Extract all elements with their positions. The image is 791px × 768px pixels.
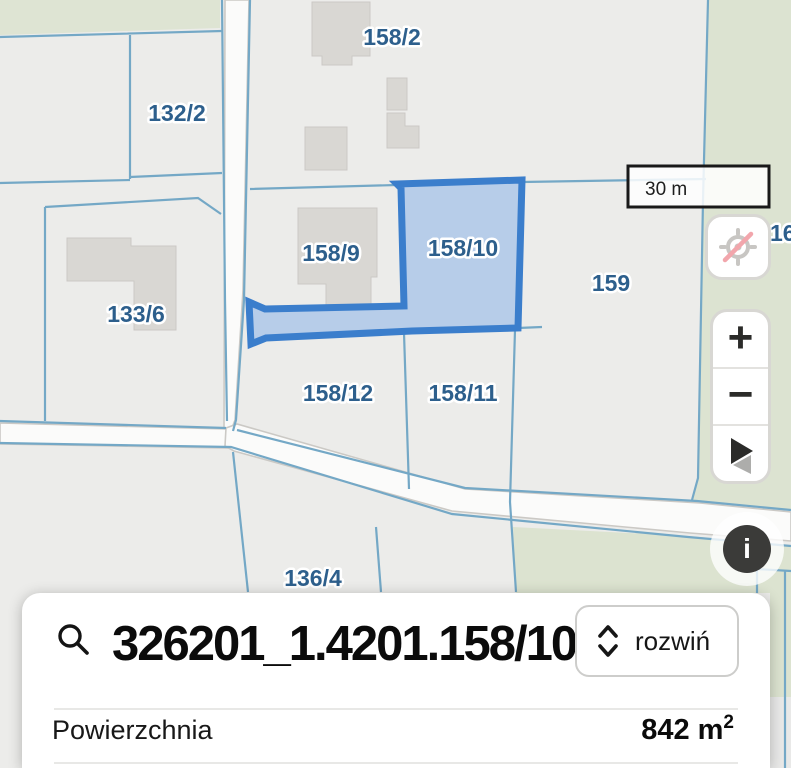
building: [305, 127, 347, 170]
scale-bar-label: 30 m: [645, 179, 687, 200]
navigate-button[interactable]: [713, 424, 768, 481]
panel-divider: [54, 762, 738, 764]
scale-bar: 30 m: [627, 166, 770, 207]
minus-icon: −: [728, 373, 754, 417]
cadastral-map-app: 30 m 158/2 132/2 158/9 158/10 159 133/6 …: [0, 0, 791, 768]
location-disabled-icon: [717, 226, 759, 268]
parcel-label-16-clipped: 16: [770, 220, 791, 246]
building: [387, 78, 407, 110]
area-label: Powierzchnia: [52, 715, 213, 746]
parcel-label-159: 159: [592, 270, 630, 296]
info-button[interactable]: i: [723, 525, 771, 573]
parcel-identifier-title: 326201_1.4201.158/10: [112, 616, 576, 672]
chevron-up-down-icon: [597, 623, 619, 659]
building: [312, 2, 370, 65]
parcel-label-132-2: 132/2: [148, 100, 206, 126]
navigate-arrows-icon: [721, 432, 761, 476]
map-area-bottom-right: [770, 697, 791, 768]
parcel-label-136-4: 136/4: [284, 565, 342, 591]
expand-button[interactable]: rozwiń: [575, 605, 739, 677]
plus-icon: +: [728, 316, 754, 360]
search-icon: [55, 621, 93, 659]
zoom-out-button[interactable]: −: [713, 367, 768, 424]
parcel-label-133-6: 133/6: [107, 301, 165, 327]
expand-button-label: rozwiń: [635, 626, 710, 657]
parcel-label-158-12: 158/12: [303, 380, 373, 406]
area-value: 842 m2: [641, 714, 734, 747]
parcel-label-158-9: 158/9: [302, 240, 360, 266]
area-value-superscript: 2: [723, 712, 734, 733]
area-value-number: 842 m: [641, 714, 723, 746]
zoom-control-panel: + −: [710, 309, 771, 484]
info-icon: i: [743, 533, 751, 565]
result-panel: 326201_1.4201.158/10 rozwiń Powierzchnia…: [22, 593, 770, 768]
parcel-label-158-10: 158/10: [428, 235, 498, 261]
my-location-button[interactable]: [705, 214, 771, 280]
zoom-in-button[interactable]: +: [713, 312, 768, 367]
parcel-label-158-2: 158/2: [363, 24, 421, 50]
parcel-label-158-11: 158/11: [428, 380, 497, 406]
panel-divider: [54, 708, 738, 710]
